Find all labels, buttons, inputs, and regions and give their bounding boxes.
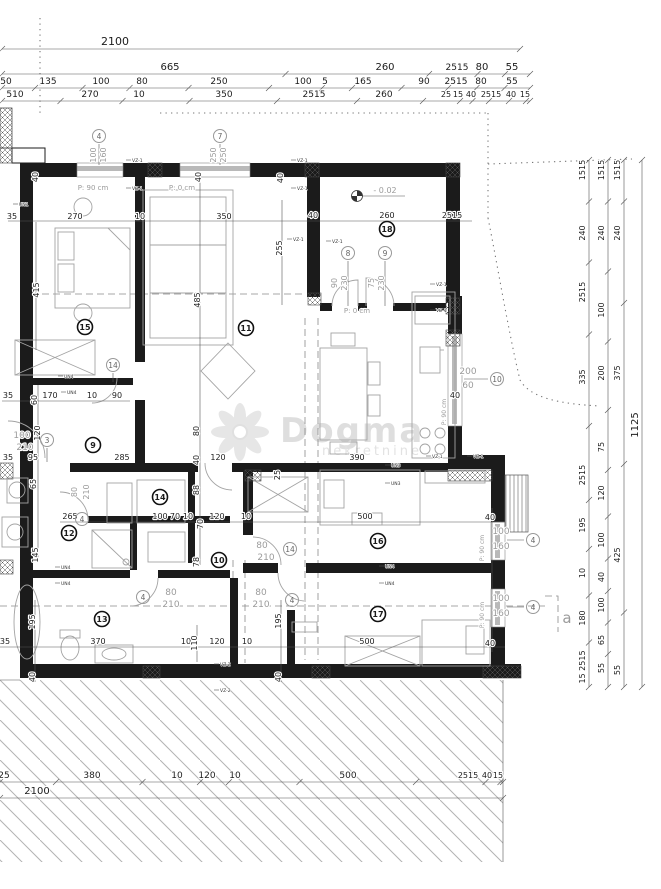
- dim-label: 165: [354, 77, 371, 87]
- dim-label: 15: [520, 90, 530, 99]
- dim-label: 10: [171, 771, 183, 781]
- opening-number: 4: [531, 603, 536, 612]
- dim-label: 240: [578, 225, 587, 240]
- dim-label: 260: [375, 90, 392, 100]
- dim-label: 2515: [578, 282, 587, 302]
- room-number: 9: [90, 441, 96, 450]
- dim-label: 195: [28, 614, 37, 629]
- dim-label: 40: [308, 211, 318, 220]
- dim-label: 60: [30, 395, 39, 405]
- dim-label: 10: [183, 512, 193, 521]
- dim-label: 88: [192, 485, 201, 495]
- dim-label: 375: [613, 365, 622, 380]
- dim-label: 210: [257, 553, 274, 563]
- dim-label: 2515: [303, 90, 326, 100]
- dim-label: 260: [375, 62, 394, 73]
- dim-label: 10: [229, 771, 241, 781]
- dim-label: 2515: [446, 63, 469, 73]
- opening-number: 4: [80, 515, 85, 524]
- dim-label: 160: [492, 542, 509, 552]
- dim-label: 485: [193, 292, 202, 307]
- room-number: 15: [79, 323, 91, 332]
- wall-type-label: VZ-1: [332, 239, 343, 245]
- dim-label: 1515: [597, 160, 606, 180]
- dim-label: 25: [0, 771, 10, 781]
- door-arc-icon: [205, 463, 232, 490]
- dim-label: 200: [459, 367, 476, 377]
- dim-label: 120: [209, 512, 224, 521]
- dim-label: 260: [379, 211, 394, 220]
- dim-label: 350: [216, 212, 231, 221]
- window-icon: [452, 336, 457, 424]
- dim-label: 35: [7, 212, 17, 221]
- dim-label: 100: [13, 431, 30, 441]
- dim-label: 55: [613, 665, 622, 675]
- dim-label: 100: [492, 594, 509, 604]
- dim-label: 90: [418, 77, 430, 87]
- floorplan-drawing: Dogma nekretnine: [0, 0, 661, 889]
- opening-number: 10: [492, 375, 502, 384]
- wall-type-label: UN4: [385, 564, 395, 570]
- dim-label: 210: [82, 484, 91, 499]
- dim-label: 210: [16, 443, 33, 453]
- dim-label: 665: [160, 62, 179, 73]
- dim-label: 110: [190, 635, 199, 650]
- dim-label: 100: [294, 77, 311, 87]
- dim-label: 510: [6, 90, 23, 100]
- dim-label: 100: [597, 532, 606, 547]
- dim-label: 35: [3, 453, 13, 462]
- dim-label: 40: [194, 172, 203, 182]
- dim-label: 170: [42, 391, 57, 400]
- hatch-band: [0, 680, 503, 862]
- room-number: 10: [213, 556, 225, 565]
- wall-type-label: UN4: [61, 581, 71, 587]
- watermark-sub: nekretnine: [322, 444, 422, 459]
- dim-label: 80: [165, 588, 177, 598]
- window-icon: [180, 166, 250, 171]
- dim-label: 40: [28, 672, 37, 682]
- dim-label: 350: [215, 90, 232, 100]
- wall-type-label: VZ-1: [432, 454, 443, 460]
- wall-type-label: VZ-2: [220, 688, 231, 694]
- room-number: 11: [240, 324, 252, 333]
- dim-label: 200: [597, 365, 606, 380]
- dim-label: 120: [597, 485, 606, 500]
- dim-label: 230: [340, 275, 349, 290]
- dim-label: 80: [70, 487, 79, 497]
- dim-label: P: 0 cm: [169, 184, 195, 192]
- dim-label: 1515: [613, 160, 622, 180]
- dim-label: 80: [256, 541, 268, 551]
- dim-label: 390: [349, 453, 364, 462]
- dim-label: 100: [92, 77, 109, 87]
- floorplan-page: Dogma nekretnine: [0, 0, 661, 889]
- room-number: 14: [154, 493, 166, 502]
- dim-label: 2515: [445, 77, 468, 87]
- dim-label: 60: [462, 381, 474, 391]
- wall-type-label: UN3: [391, 481, 401, 487]
- dim-label: 500: [357, 512, 372, 521]
- dim-label: 40: [276, 173, 285, 183]
- room-number: 18: [381, 225, 393, 234]
- wall-type-label: VZ-1: [132, 158, 143, 164]
- dim-label: 78: [192, 557, 201, 567]
- dim-label: 195: [578, 517, 587, 532]
- dim-label: 2515: [481, 90, 501, 99]
- dim-label: 40: [482, 771, 492, 780]
- opening-number: 8: [346, 249, 351, 258]
- dim-label: 90: [112, 391, 122, 400]
- room-number: 16: [372, 537, 384, 546]
- opening-number: 9: [383, 249, 388, 258]
- dim-label: 210: [252, 600, 269, 610]
- dim-label: 65: [597, 635, 606, 645]
- dim-label: 145: [31, 547, 40, 562]
- room-number: 17: [372, 610, 383, 619]
- dim-label: 100: [597, 302, 606, 317]
- dim-label: 250: [209, 147, 218, 162]
- wall-type-label: UN4: [61, 565, 71, 571]
- dim-label: 10: [578, 568, 587, 578]
- dim-label: 10: [241, 512, 251, 521]
- wall-type-label: UN4: [385, 581, 395, 587]
- dim-label: P: 90 cm: [78, 184, 109, 192]
- dim-label: 10: [135, 212, 145, 221]
- dim-label: 120: [198, 771, 215, 781]
- dim-label: 95: [28, 453, 38, 462]
- dim-label: 255: [275, 240, 284, 255]
- exterior-platform: [505, 475, 528, 532]
- dim-label: 2515: [578, 465, 587, 485]
- dim-label: 100: [89, 147, 98, 162]
- dim-label: 15: [493, 771, 503, 780]
- dim-label: 370: [90, 637, 105, 646]
- dim-label: 80: [255, 588, 267, 598]
- wall-type-label: UN1: [19, 202, 29, 208]
- dim-label: 335: [578, 369, 587, 384]
- dim-label: 80: [192, 426, 201, 436]
- dim-label: 10: [87, 391, 97, 400]
- dim-label: 500: [339, 771, 356, 781]
- wall-type-label: VZ-1: [436, 282, 447, 288]
- dim-label: 80: [136, 77, 148, 87]
- dim-label: 415: [32, 282, 41, 297]
- dim-label: 180: [578, 610, 587, 625]
- dim-label: P: 90 cm: [479, 602, 486, 628]
- dim-label: 50: [0, 77, 12, 87]
- wall-type-label: VZ-1: [132, 186, 143, 192]
- dim-label: 250: [219, 147, 228, 162]
- dim-label: 160: [99, 147, 108, 162]
- room-number: 13: [96, 615, 107, 624]
- dim-label: 15: [453, 90, 463, 99]
- dim-label: 70: [196, 519, 205, 529]
- dim-label: a: [562, 609, 571, 627]
- room-number: 12: [63, 529, 74, 538]
- dim-label: 100: [492, 527, 509, 537]
- dim-label: 40: [450, 391, 460, 400]
- opening-number: 4: [531, 536, 536, 545]
- dim-label: 40: [506, 90, 516, 99]
- opening-number: 14: [285, 545, 295, 554]
- wall-type-label: VZ-1: [293, 237, 304, 243]
- dim-label: 35: [0, 637, 10, 646]
- dim-label: 120: [210, 453, 225, 462]
- opening-number: 3: [45, 436, 50, 445]
- dim-label: 270: [81, 90, 98, 100]
- wall-type-label: VZ-1: [473, 454, 484, 460]
- dim-label: 35: [3, 391, 13, 400]
- dim-label: 75: [597, 442, 606, 452]
- dim-label: 10: [242, 637, 252, 646]
- dim-label: 40: [31, 172, 40, 182]
- level-marker-icon: [352, 191, 363, 202]
- dim-label: 240: [597, 225, 606, 240]
- dim-label: 230: [377, 275, 386, 290]
- dim-label: 2100: [101, 35, 129, 48]
- dim-label: 80: [476, 62, 489, 73]
- dim-label: P: 90 cm: [479, 535, 486, 561]
- dim-label: 25: [273, 470, 282, 480]
- dim-label: 160: [492, 609, 509, 619]
- dim-label: 120: [209, 637, 224, 646]
- wall-type-label: UN3: [391, 463, 401, 469]
- dim-label: 425: [613, 547, 622, 562]
- wall-type-label: VZ-1: [436, 308, 447, 314]
- dim-label: 40: [597, 572, 606, 582]
- dim-label: 380: [83, 771, 100, 781]
- dim-label: - 0.02: [373, 186, 396, 195]
- dim-label: 90: [330, 278, 339, 288]
- window-icon: [77, 166, 123, 171]
- wall-type-label: UN4: [67, 390, 77, 396]
- dim-label: 55: [506, 77, 517, 87]
- opening-number: 4: [141, 593, 146, 602]
- dim-label: 1515: [578, 160, 587, 180]
- dim-label: 500: [359, 637, 374, 646]
- dim-label: 195: [274, 613, 283, 628]
- dim-label: 240: [613, 225, 622, 240]
- dim-label: P: 0 cm: [344, 307, 370, 315]
- dim-label: 40: [192, 455, 201, 465]
- dim-label: 55: [597, 663, 606, 673]
- dim-label: 285: [114, 453, 129, 462]
- dim-label: 2515: [458, 771, 478, 780]
- dim-label: 65: [29, 479, 38, 489]
- dim-label: 10: [133, 90, 145, 100]
- dim-label: 270: [67, 212, 82, 221]
- dim-label: 40: [485, 639, 495, 648]
- dim-label: 70: [170, 512, 180, 521]
- dim-label: P: 90 cm: [441, 399, 448, 425]
- opening-number: 7: [218, 132, 223, 141]
- opening-number: 4: [290, 596, 295, 605]
- wall-type-label: VZ-1: [297, 186, 308, 192]
- wall-type-label: VZ-2: [220, 662, 231, 668]
- dim-label: 55: [506, 62, 519, 73]
- dim-label: 100: [152, 512, 167, 521]
- dim-label: 2515: [442, 211, 462, 220]
- dim-label: 40: [274, 672, 283, 682]
- dim-label: 40: [466, 90, 476, 99]
- dim-label: 210: [162, 600, 179, 610]
- wall-type-label: VZ-1: [297, 158, 308, 164]
- wall-type-label: UN4: [64, 374, 74, 380]
- dim-label: 1125: [630, 412, 641, 437]
- dim-label: 135: [39, 77, 56, 87]
- dim-label: 80: [475, 77, 487, 87]
- dim-label: 5: [322, 77, 328, 87]
- dim-label: 15 2515: [578, 650, 587, 683]
- dim-label: 40: [485, 513, 495, 522]
- opening-number: 4: [97, 132, 102, 141]
- dim-label: 250: [210, 77, 227, 87]
- opening-number: 14: [108, 361, 118, 370]
- dim-label: 75: [367, 278, 376, 288]
- dim-label: 2100: [24, 786, 49, 797]
- dim-label: 100: [597, 597, 606, 612]
- dim-label: 25: [441, 90, 451, 99]
